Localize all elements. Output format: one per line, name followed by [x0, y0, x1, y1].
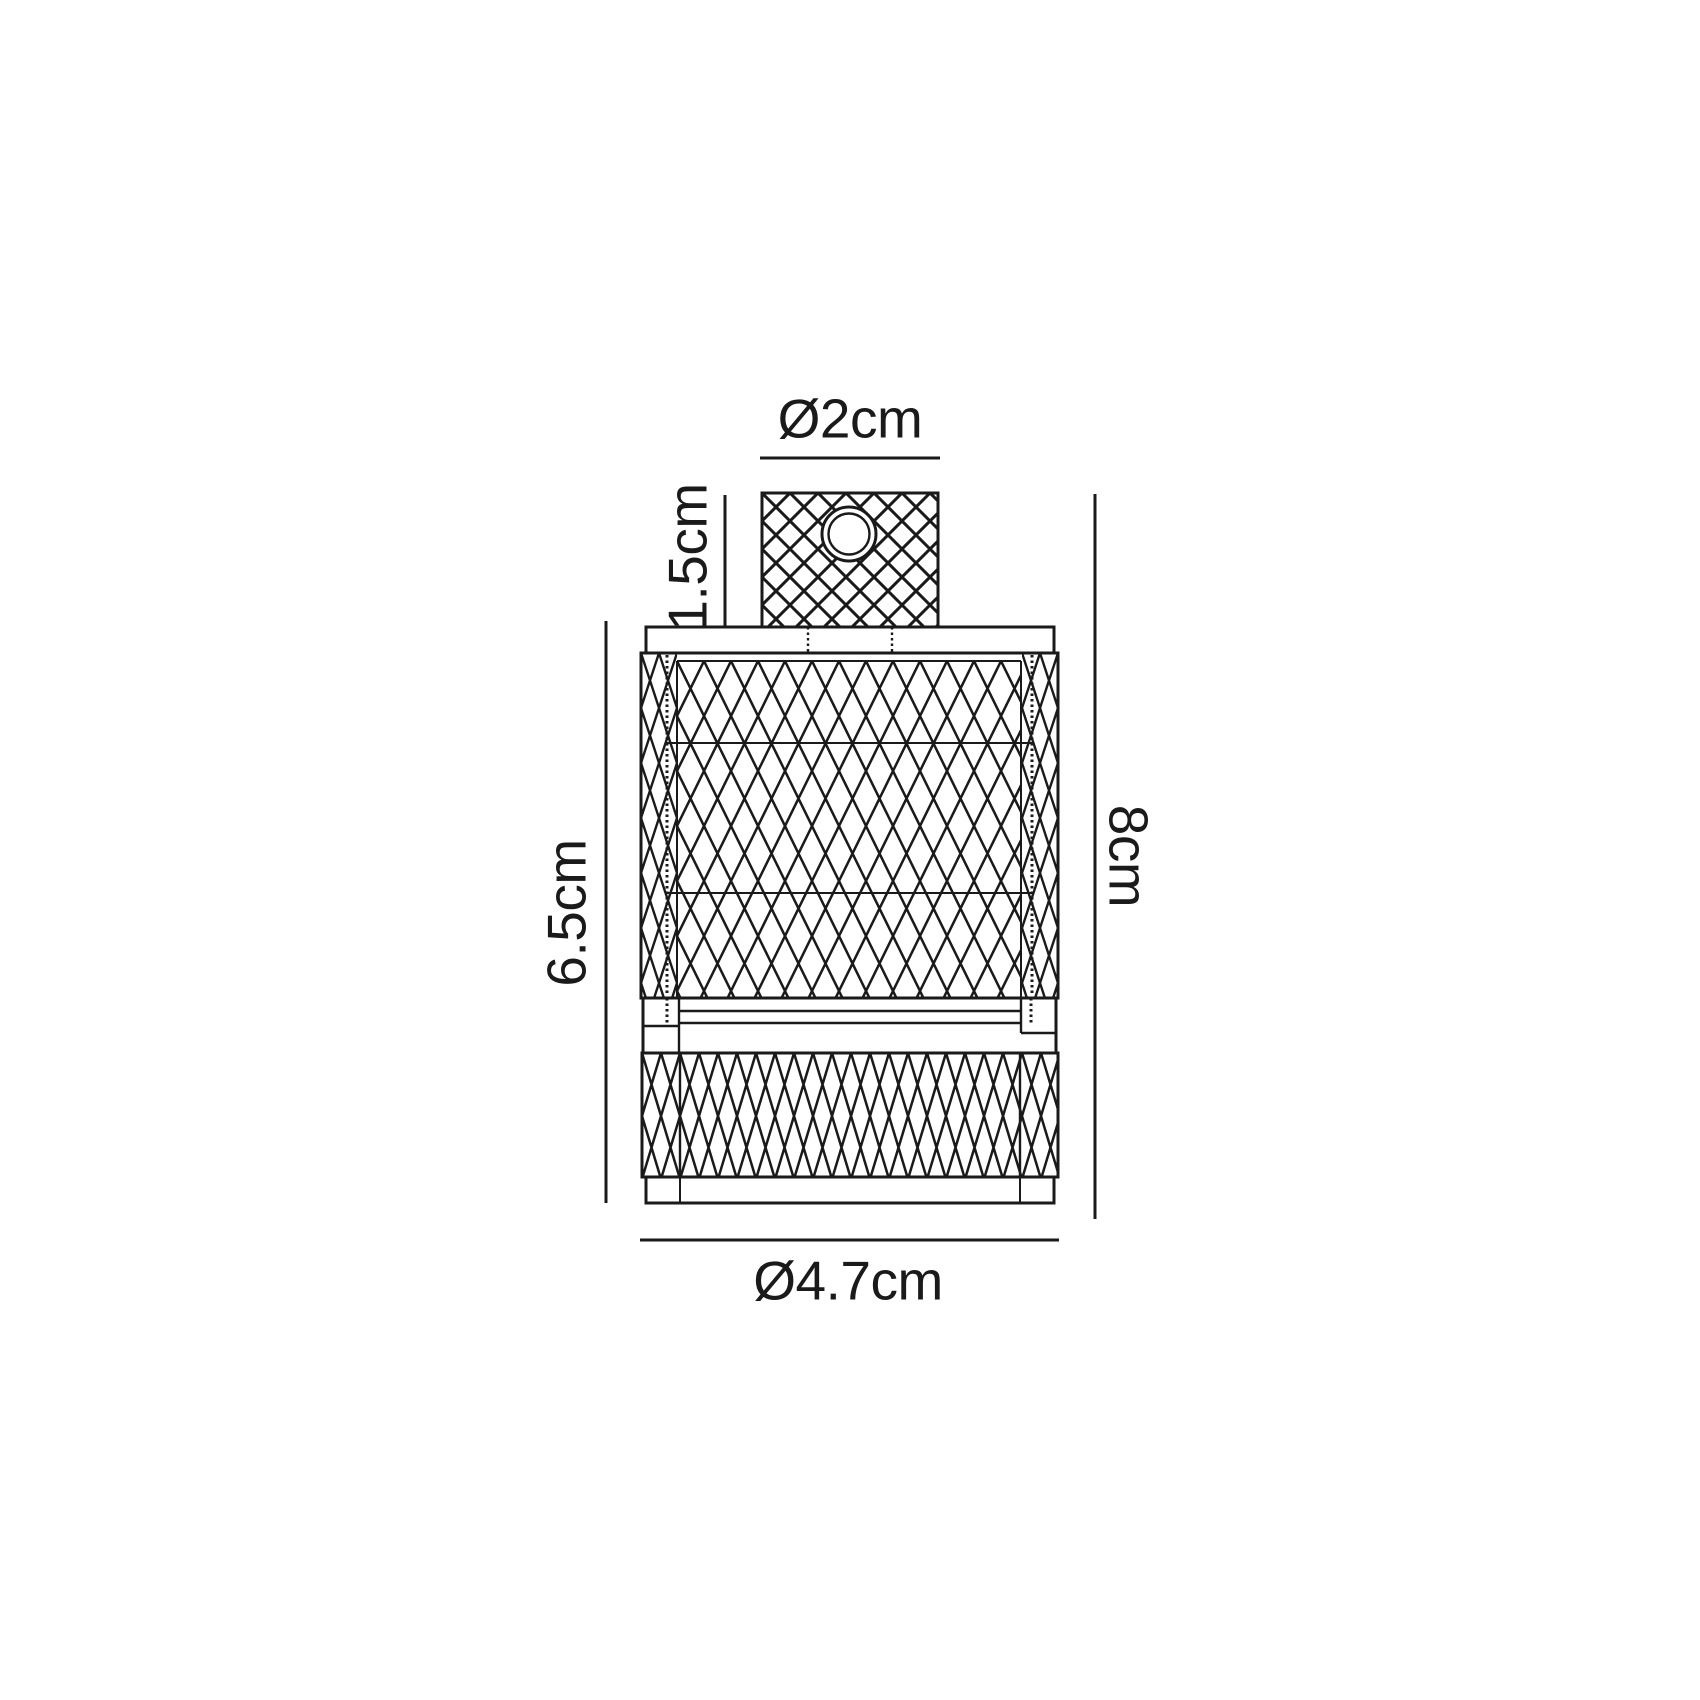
lower-ring-outline — [642, 1053, 1058, 1177]
dim-label-grip-height: 1.5cm — [661, 483, 716, 630]
top-cap-plate — [646, 627, 1054, 653]
dim-label-top-diameter: Ø2cm — [778, 392, 923, 447]
technical-drawing — [0, 0, 1700, 1700]
lamp-holder-dimension-drawing: Ø2cm 1.5cm 6.5cm 8cm Ø4.7cm — [0, 0, 1700, 1700]
dim-label-body-height: 6.5cm — [540, 839, 595, 986]
bottom-ring — [646, 1177, 1054, 1203]
top-cap — [646, 627, 1054, 653]
dim-label-body-diameter: Ø4.7cm — [753, 1254, 943, 1309]
cord-entry-hole-outer — [822, 507, 876, 561]
upper-knurled-body — [641, 653, 1058, 998]
body-front-mesh — [677, 661, 1021, 998]
collar-ring — [643, 998, 1056, 1053]
cord-grip-knob — [762, 493, 938, 627]
body-left-side-mesh — [641, 653, 677, 998]
bottom-ring-outline — [646, 1177, 1054, 1203]
body-right-side-mesh — [1022, 653, 1058, 998]
dim-label-overall-height: 8cm — [1101, 805, 1156, 907]
lower-knurled-ring — [642, 1053, 1058, 1177]
